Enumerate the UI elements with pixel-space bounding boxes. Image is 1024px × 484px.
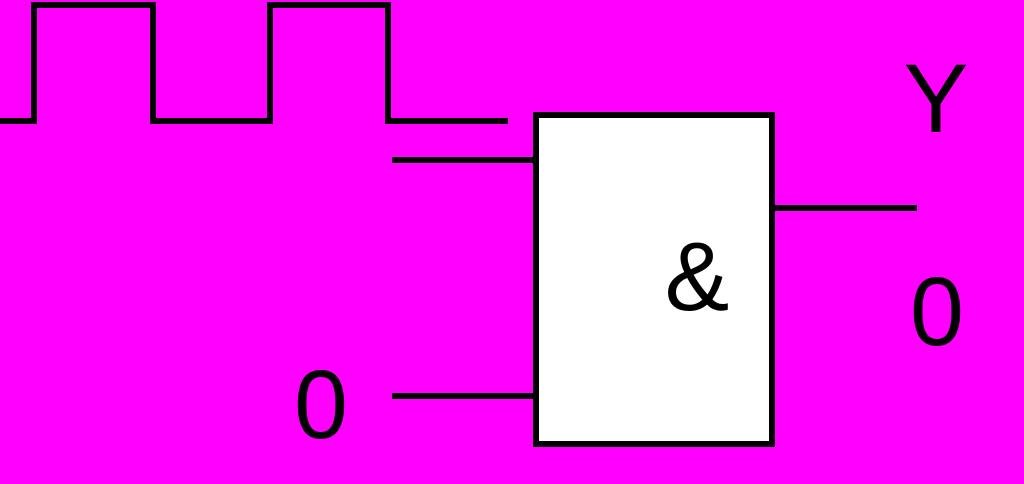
logic-circuit-diagram: & Y 0 0 [0, 0, 1024, 484]
output-name-label: Y [904, 44, 969, 153]
input-bottom-value-label: 0 [294, 350, 348, 459]
output-value-label: 0 [910, 257, 964, 366]
and-gate-body [536, 115, 772, 444]
circuit-canvas: & Y 0 0 [0, 0, 1024, 484]
clock-waveform [0, 5, 508, 121]
and-gate-symbol: & [665, 222, 730, 331]
